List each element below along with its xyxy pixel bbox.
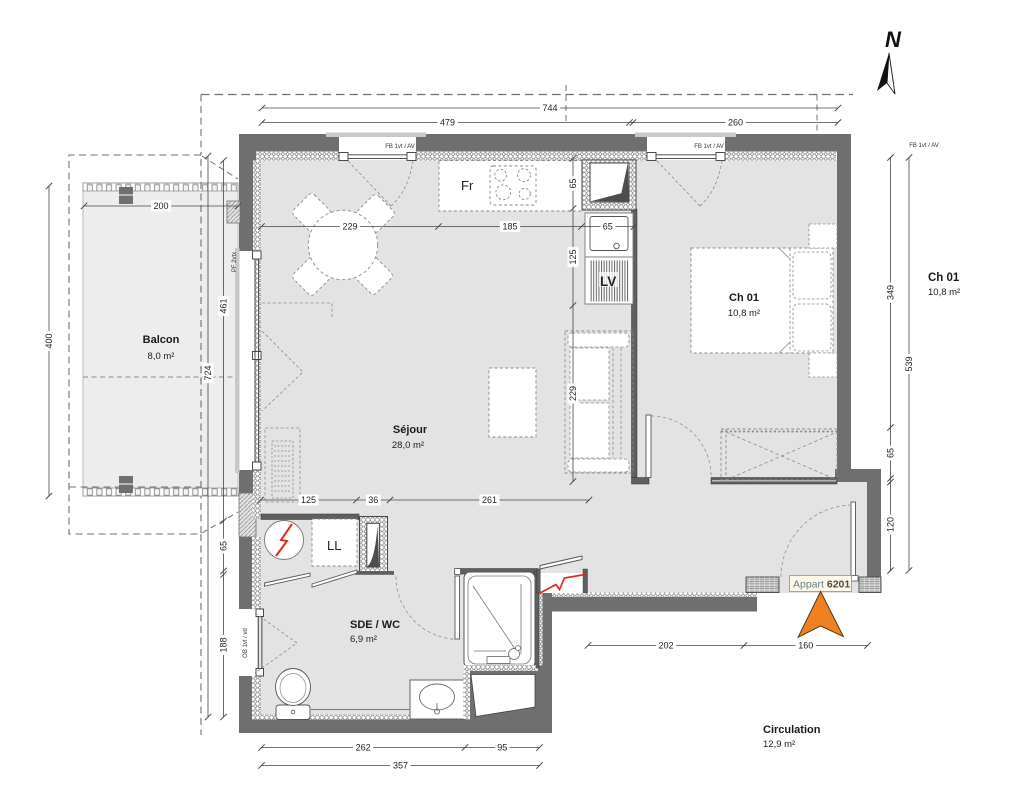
svg-text:95: 95 — [497, 743, 507, 753]
svg-text:Appart 6201: Appart 6201 — [793, 579, 850, 591]
svg-text:185: 185 — [502, 222, 517, 232]
svg-text:LL: LL — [327, 538, 341, 553]
svg-text:SDE / WC: SDE / WC — [350, 619, 400, 631]
svg-text:349: 349 — [886, 285, 896, 300]
svg-text:260: 260 — [728, 118, 743, 128]
svg-text:65: 65 — [886, 448, 896, 458]
svg-text:N: N — [885, 27, 902, 52]
svg-text:LV: LV — [600, 274, 616, 289]
svg-text:10,8 m²: 10,8 m² — [728, 308, 760, 319]
svg-text:Séjour: Séjour — [393, 424, 428, 436]
svg-text:261: 261 — [482, 495, 497, 505]
svg-text:36: 36 — [368, 495, 378, 505]
svg-text:Fr: Fr — [461, 178, 474, 193]
svg-text:FB 1vt / AV: FB 1vt / AV — [694, 144, 724, 150]
svg-text:120: 120 — [886, 517, 896, 532]
svg-text:Ch 01: Ch 01 — [928, 272, 960, 284]
svg-text:65: 65 — [568, 178, 578, 188]
svg-text:125: 125 — [301, 495, 316, 505]
svg-text:357: 357 — [393, 761, 408, 771]
svg-text:160: 160 — [798, 641, 813, 651]
svg-text:28,0 m²: 28,0 m² — [392, 440, 424, 451]
svg-text:Ch 01: Ch 01 — [729, 292, 759, 304]
svg-text:FB 1vt / AV: FB 1vt / AV — [909, 143, 939, 149]
svg-text:229: 229 — [342, 222, 357, 232]
svg-text:479: 479 — [440, 118, 455, 128]
svg-text:65: 65 — [219, 541, 229, 551]
svg-text:188: 188 — [219, 637, 229, 652]
svg-text:65: 65 — [603, 222, 613, 232]
svg-text:6,9 m²: 6,9 m² — [350, 634, 377, 645]
svg-text:262: 262 — [356, 743, 371, 753]
svg-text:744: 744 — [542, 103, 557, 113]
svg-text:OB 1vt / vd: OB 1vt / vd — [243, 628, 249, 658]
svg-text:229: 229 — [568, 386, 578, 401]
svg-text:202: 202 — [658, 641, 673, 651]
svg-text:400: 400 — [44, 333, 54, 348]
svg-text:200: 200 — [153, 201, 168, 211]
svg-text:8,0 m²: 8,0 m² — [148, 351, 175, 362]
svg-text:125: 125 — [568, 249, 578, 264]
svg-text:461: 461 — [219, 298, 229, 313]
svg-text:539: 539 — [904, 356, 914, 371]
svg-text:PF 2vtx: PF 2vtx — [232, 252, 238, 272]
svg-text:724: 724 — [203, 365, 213, 380]
svg-text:Balcon: Balcon — [143, 334, 180, 346]
svg-text:10,8 m²: 10,8 m² — [928, 287, 960, 298]
svg-text:FB 1vt / AV: FB 1vt / AV — [385, 144, 415, 150]
svg-text:Circulation: Circulation — [763, 724, 821, 736]
svg-text:12,9 m²: 12,9 m² — [763, 739, 795, 750]
